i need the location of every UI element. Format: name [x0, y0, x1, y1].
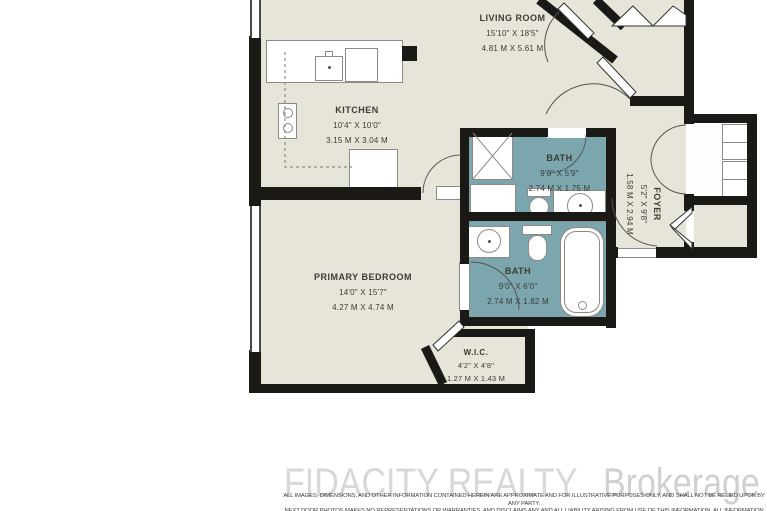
label-kitchen: KITCHEN 10'4" X 10'0" 3.15 M X 3.04 M [298, 104, 416, 147]
wall-foyer-top [630, 96, 688, 106]
label-wic: W.I.C. 4'2" X 4'8" 1.27 M X 1.43 M [430, 347, 522, 385]
label-foyer: FOYER 5'2" X 9'8" 1.58 M X 2.94 M [598, 160, 688, 248]
closet-door-panel [722, 124, 748, 160]
wall-bottom [249, 384, 535, 393]
window-bedroom [250, 206, 261, 352]
disclaimer-line-1: ALL IMAGES, DIMENSIONS, AND OTHER INFORM… [283, 493, 765, 508]
toilet-tank-icon [522, 225, 552, 235]
burner-icon [283, 123, 293, 133]
toilet-bowl-icon [528, 235, 547, 261]
wall-wic-right [525, 329, 535, 391]
room-name: W.I.C. [430, 347, 522, 359]
wall-left-upper [249, 36, 261, 206]
entry-door-threshold [612, 248, 658, 258]
room-dim-imperial: 15'10" X 18'5" [425, 27, 600, 40]
room-name: LIVING ROOM [425, 12, 600, 25]
floor-plan: LIVING ROOM 15'10" X 18'5" 4.81 M X 5.61… [0, 0, 767, 511]
wall-bath-top-a [460, 128, 548, 137]
disclaimer-text: ALL IMAGES, DIMENSIONS, AND OTHER INFORM… [283, 493, 765, 511]
room-name: PRIMARY BEDROOM [277, 271, 449, 284]
label-primary-bedroom: PRIMARY BEDROOM 14'0" X 15'7" 4.27 M X 4… [277, 271, 449, 314]
closet-door-divider [723, 179, 747, 180]
room-dim-imperial: 10'4" X 10'0" [298, 119, 416, 132]
burner-icon [283, 108, 293, 118]
wall-right-upper [684, 0, 694, 124]
wall-wic-top [450, 329, 535, 337]
bath-upper-door-gap [547, 128, 587, 138]
room-name: FOYER [651, 173, 663, 235]
wall-bath-divider [462, 212, 615, 221]
wall-counter-stub [402, 46, 417, 61]
room-name: KITCHEN [298, 104, 416, 117]
room-dim-metric: 3.15 M X 3.04 M [298, 134, 416, 147]
wall-closet-right [747, 114, 757, 258]
window-kitchen [250, 0, 261, 38]
sink-drain-icon [579, 204, 582, 207]
room-dim-metric: 1.58 M X 2.94 M [623, 173, 635, 235]
kitchen-sink-drain [328, 66, 331, 69]
wall-foyer-bottom-b [656, 247, 757, 258]
foyer-rotated-text: FOYER 5'2" X 9'8" 1.58 M X 2.94 M [623, 173, 663, 235]
wall-bedroom-top [255, 187, 421, 200]
room-dim-imperial: 14'0" X 15'7" [277, 286, 449, 299]
room-dim-metric: 2.74 M X 1.82 M [453, 295, 583, 308]
label-living-room: LIVING ROOM 15'10" X 18'5" 4.81 M X 5.61… [425, 12, 600, 55]
wall-foyer-bottom-a [612, 247, 618, 258]
closet-door-divider [723, 142, 747, 143]
wall-bath-bottom [460, 317, 616, 326]
wall-bath-left-upper [460, 128, 469, 264]
closet-door-panel [722, 161, 748, 197]
room-dim-metric: 4.81 M X 5.61 M [425, 42, 600, 55]
stove-icon [345, 48, 378, 82]
room-dim-imperial: 9'0" X 6'0" [453, 280, 583, 293]
room-name: BATH [453, 265, 583, 278]
floor-foyer-closet [694, 203, 750, 249]
room-dim-metric: 1.27 M X 1.43 M [430, 373, 522, 385]
room-dim-metric: 4.27 M X 4.74 M [277, 301, 449, 314]
label-bath-lower: BATH 9'0" X 6'0" 2.74 M X 1.82 M [453, 265, 583, 308]
room-dim-imperial: 4'2" X 4'8" [430, 360, 522, 372]
sink-drain-icon [488, 240, 491, 243]
kitchen-peninsula-counter [349, 149, 398, 188]
kitchen-faucet-icon [325, 51, 333, 57]
room-dim-imperial: 5'2" X 9'8" [637, 173, 649, 235]
